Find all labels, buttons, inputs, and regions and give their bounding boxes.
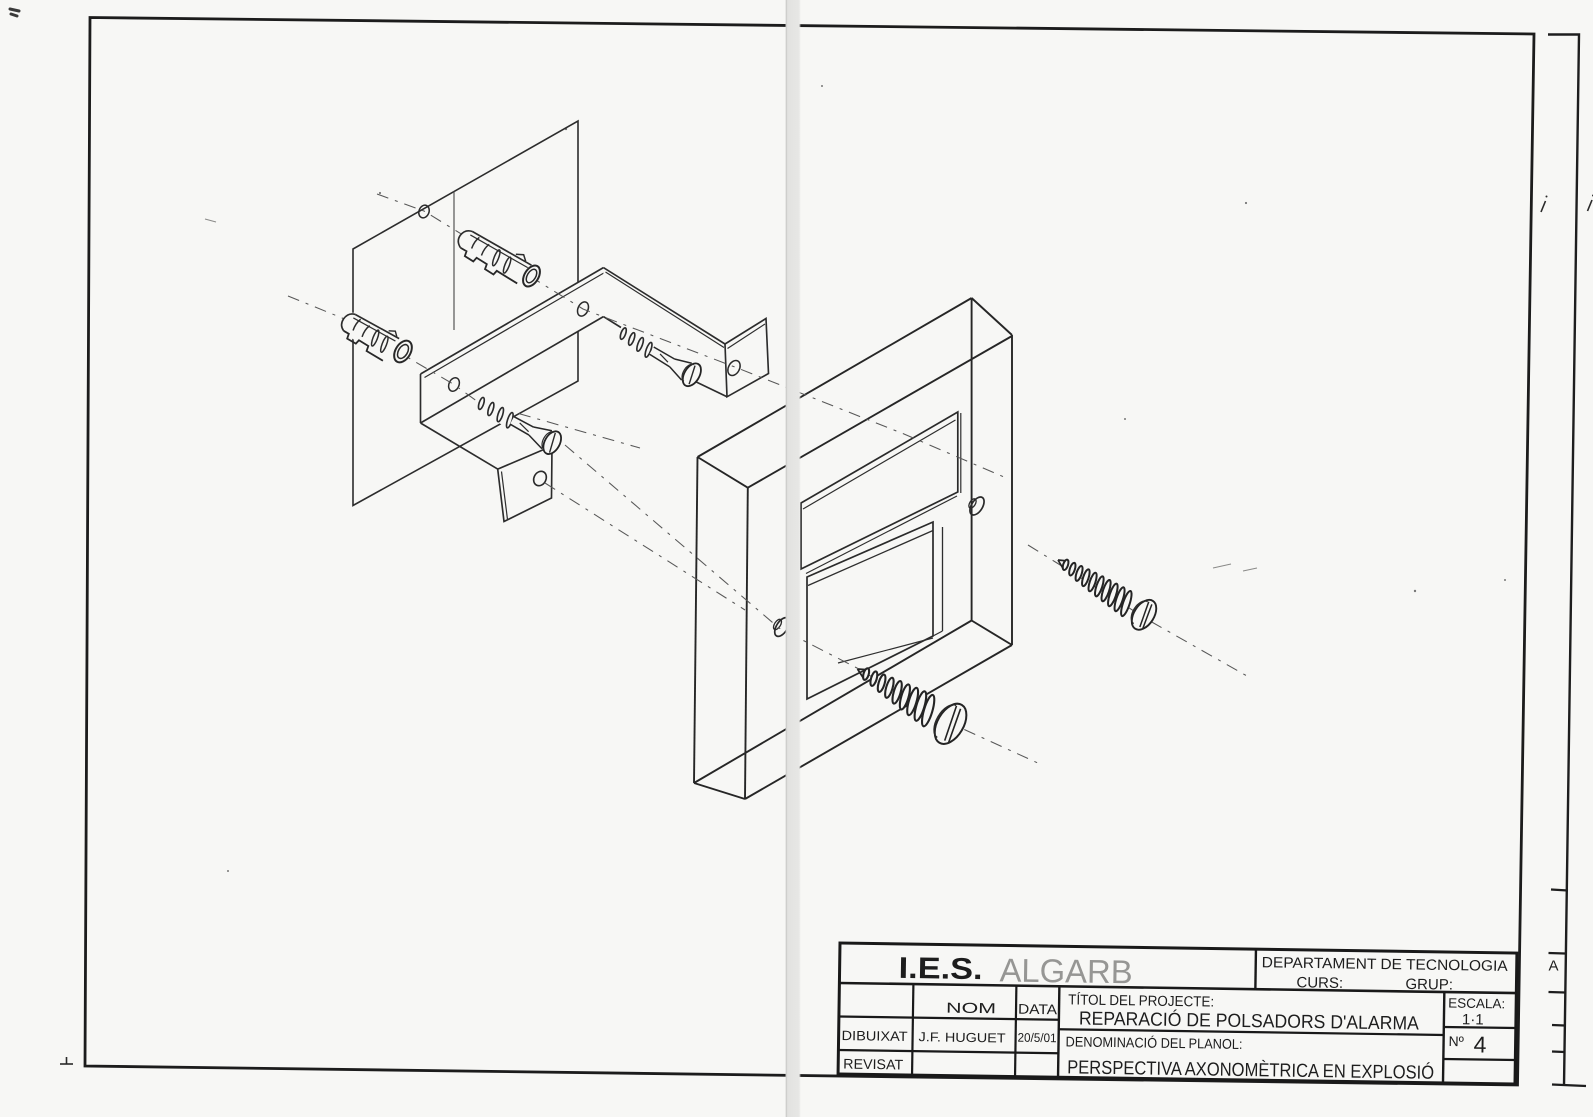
svg-text:DIBUIXAT: DIBUIXAT [842,1028,908,1044]
svg-text:20/5/01: 20/5/01 [1018,1031,1057,1046]
svg-text:REVISAT: REVISAT [843,1056,904,1073]
svg-text:NOM: NOM [946,1001,996,1018]
svg-text:CURS:: CURS: [1296,974,1343,992]
svg-text:4: 4 [1473,1031,1486,1057]
svg-text:Nº: Nº [1448,1033,1463,1049]
svg-text:ALGARB: ALGARB [999,951,1133,990]
svg-text:ESCALA:: ESCALA: [1448,996,1505,1012]
svg-text:I.E.S.: I.E.S. [898,952,982,986]
svg-text:DATA: DATA [1018,1001,1058,1018]
svg-text:DENOMINACIÓ DEL PLANOL:: DENOMINACIÓ DEL PLANOL: [1065,1033,1242,1052]
svg-text:GRUP:: GRUP: [1405,976,1453,994]
svg-text:A: A [1549,958,1559,975]
svg-text:J.F. HUGUET: J.F. HUGUET [919,1029,1006,1045]
svg-text:TÍTOL DEL PROJECTE:: TÍTOL DEL PROJECTE: [1068,991,1214,1010]
svg-text:1·1: 1·1 [1462,1011,1484,1028]
